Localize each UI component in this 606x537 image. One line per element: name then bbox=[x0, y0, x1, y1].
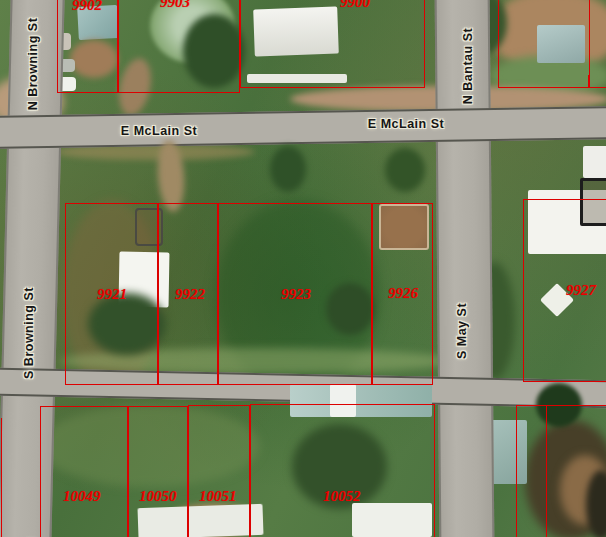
parcel-10051[interactable] bbox=[188, 405, 250, 537]
tree-canopy bbox=[270, 146, 306, 192]
street-label-n-bantau: N Bantau St bbox=[461, 28, 475, 104]
street-label-s-browning: S Browning St bbox=[22, 287, 36, 379]
parcel-label: 10051 bbox=[199, 489, 237, 503]
parcel-bottom-right[interactable] bbox=[516, 405, 606, 537]
parcel-9900[interactable] bbox=[240, 0, 425, 88]
parcel-label: 10050 bbox=[139, 489, 177, 503]
parcel-label: 9902 bbox=[72, 0, 102, 12]
parcel-line-left-edge bbox=[1, 418, 3, 537]
parcel-label: 10049 bbox=[63, 489, 101, 503]
street-label-e-mclain-west: E McLain St bbox=[121, 124, 197, 138]
street-label-e-mclain-east: E McLain St bbox=[368, 117, 444, 131]
street-label-n-browning: N Browning St bbox=[26, 18, 40, 111]
dirt-path bbox=[156, 139, 187, 213]
building-roof bbox=[583, 146, 606, 178]
parcel-label: 9903 bbox=[160, 0, 190, 9]
street-label-s-may: S May St bbox=[455, 303, 469, 359]
parcel-label: 9926 bbox=[388, 286, 418, 300]
tree-canopy bbox=[385, 148, 425, 192]
parcel-9903[interactable] bbox=[118, 0, 240, 93]
parcel-label: 9922 bbox=[175, 287, 205, 301]
parcel-top-right[interactable] bbox=[498, 0, 590, 88]
parcel-top-right-stub[interactable] bbox=[588, 75, 606, 88]
parcel-line-bottom-right bbox=[546, 406, 548, 537]
parcel-label: 9927 bbox=[566, 283, 596, 297]
parcel-label: 9921 bbox=[97, 287, 127, 301]
mclain-street-road bbox=[0, 106, 606, 149]
parcel-label: 9923 bbox=[281, 287, 311, 301]
parcel-label: 10052 bbox=[323, 489, 361, 503]
parcel-10050[interactable] bbox=[128, 406, 188, 537]
map-canvas[interactable]: 9902 9903 9900 9921 9922 9923 9926 9927 … bbox=[0, 0, 606, 537]
parcel-10049[interactable] bbox=[40, 406, 128, 537]
parcel-10052[interactable] bbox=[250, 404, 435, 537]
parcel-9902[interactable] bbox=[57, 0, 118, 93]
parcel-label: 9900 bbox=[340, 0, 370, 9]
